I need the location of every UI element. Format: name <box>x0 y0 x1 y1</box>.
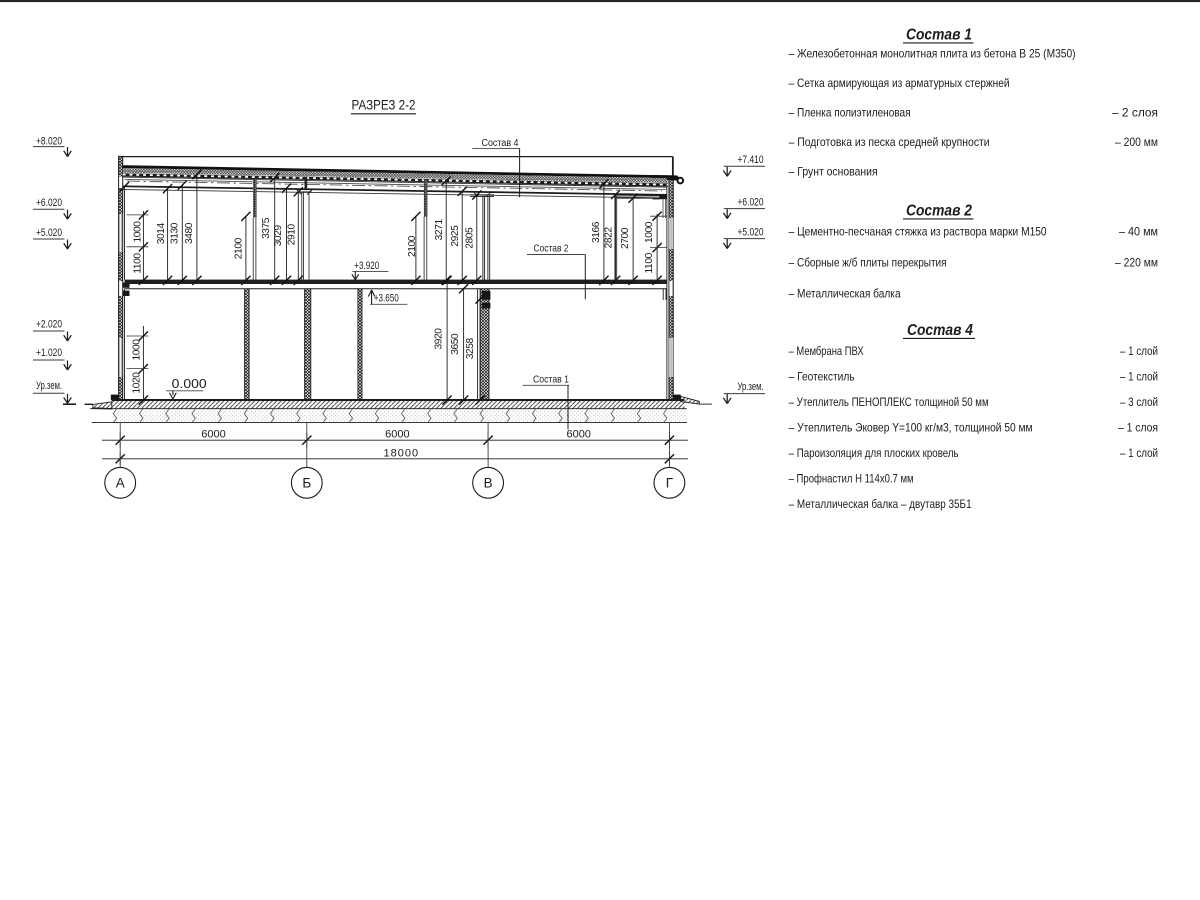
svg-text:0.000: 0.000 <box>172 377 207 391</box>
svg-text:+5.020: +5.020 <box>36 227 62 239</box>
svg-text:Б: Б <box>302 476 311 491</box>
svg-text:+8.020: +8.020 <box>36 136 62 148</box>
svg-text:3029: 3029 <box>273 225 284 247</box>
svg-text:+6.020: +6.020 <box>36 197 62 209</box>
svg-text:– Металлическая балка: – Металлическая балка <box>789 287 901 301</box>
svg-text:– Сетка армирующая из арматурн: – Сетка армирующая из арматурных стержне… <box>789 76 1010 90</box>
svg-text:– Геотекстиль: – Геотекстиль <box>789 370 855 384</box>
svg-text:– Профнастил Н 114х0.7 мм: – Профнастил Н 114х0.7 мм <box>789 472 914 486</box>
svg-text:– 2 слоя: – 2 слоя <box>1112 106 1158 120</box>
svg-text:6000: 6000 <box>201 429 225 441</box>
svg-text:Г: Г <box>666 476 674 491</box>
svg-text:– 220 мм: – 220 мм <box>1115 256 1158 270</box>
svg-text:2805: 2805 <box>464 227 475 249</box>
svg-text:2700: 2700 <box>620 227 631 249</box>
svg-text:+5.020: +5.020 <box>738 227 764 239</box>
svg-text:3130: 3130 <box>170 222 181 244</box>
svg-text:– 1 слой: – 1 слой <box>1120 446 1158 460</box>
svg-text:– Сборные ж/б плиты перекрытия: – Сборные ж/б плиты перекрытия <box>789 256 947 270</box>
svg-text:– Мембрана ПВХ: – Мембрана ПВХ <box>789 344 864 358</box>
svg-text:3650: 3650 <box>450 333 461 355</box>
svg-text:– Пленка полиэтиленовая: – Пленка полиэтиленовая <box>789 106 911 120</box>
svg-text:1000: 1000 <box>133 221 144 243</box>
svg-text:1100: 1100 <box>644 252 655 273</box>
svg-text:Ур.зем.: Ур.зем. <box>738 381 764 393</box>
svg-text:+3.650: +3.650 <box>374 293 399 305</box>
svg-text:2100: 2100 <box>234 237 245 259</box>
svg-text:2822: 2822 <box>604 227 615 249</box>
svg-text:1020: 1020 <box>131 372 142 394</box>
svg-text:3375: 3375 <box>261 217 272 239</box>
svg-text:– Металлическая балка – двутав: – Металлическая балка – двутавр 35Б1 <box>789 497 972 511</box>
svg-text:– 200 мм: – 200 мм <box>1115 135 1158 149</box>
svg-text:+1.020: +1.020 <box>36 347 62 359</box>
svg-text:Состав 2: Состав 2 <box>534 243 569 255</box>
svg-text:3271: 3271 <box>434 219 445 241</box>
svg-text:+3.920: +3.920 <box>354 260 379 272</box>
svg-text:– 3 слой: – 3 слой <box>1120 395 1158 409</box>
svg-text:– 1 слоя: – 1 слоя <box>1118 421 1158 435</box>
svg-text:Ур.зем.: Ур.зем. <box>36 380 62 392</box>
svg-text:3166: 3166 <box>591 221 602 243</box>
svg-text:1000: 1000 <box>131 339 142 361</box>
svg-text:2910: 2910 <box>286 223 297 245</box>
svg-text:– 40 мм: – 40 мм <box>1119 225 1158 239</box>
svg-text:+7.410: +7.410 <box>738 154 764 166</box>
svg-text:2925: 2925 <box>450 225 461 247</box>
svg-text:– Грунт основания: – Грунт основания <box>789 165 878 179</box>
svg-text:– Железобетонная монолитная п: – Железобетонная монолитная плита из бет… <box>789 47 1076 61</box>
svg-text:1100: 1100 <box>133 253 144 274</box>
svg-text:– Утеплитель Эковер Y=100 кг/м: – Утеплитель Эковер Y=100 кг/м3, толщино… <box>789 421 1033 435</box>
svg-text:– Утеплитель ПЕНОПЛЕКС толщино: – Утеплитель ПЕНОПЛЕКС толщиной 50 мм <box>789 395 989 409</box>
svg-text:– 1 слой: – 1 слой <box>1120 370 1158 384</box>
svg-text:6000: 6000 <box>566 429 590 441</box>
svg-text:2100: 2100 <box>407 235 418 257</box>
svg-text:– Подготовка из песка средней: – Подготовка из песка средней крупности <box>789 135 990 149</box>
svg-text:Состав 1: Состав 1 <box>906 27 972 44</box>
svg-text:В: В <box>484 476 493 491</box>
svg-text:– Цементно-песчаная стяжка из: – Цементно-песчаная стяжка из раствора м… <box>789 225 1047 239</box>
svg-text:Состав 4: Состав 4 <box>907 322 973 339</box>
svg-text:+2.020: +2.020 <box>36 319 62 331</box>
svg-text:1000: 1000 <box>644 221 655 243</box>
svg-text:– Пароизоляция для плоских кро: – Пароизоляция для плоских кровель <box>789 446 959 460</box>
svg-text:Состав 2: Состав 2 <box>906 203 972 220</box>
svg-text:3258: 3258 <box>465 337 476 359</box>
svg-text:18000: 18000 <box>384 447 420 459</box>
svg-text:3920: 3920 <box>433 328 444 350</box>
svg-text:Состав 1: Состав 1 <box>533 374 569 386</box>
svg-text:– 1 слой: – 1 слой <box>1120 344 1158 358</box>
svg-text:А: А <box>116 476 125 491</box>
svg-text:Состав 4: Состав 4 <box>482 137 519 149</box>
svg-text:6000: 6000 <box>385 429 409 441</box>
svg-text:3014: 3014 <box>156 222 167 244</box>
svg-text:3480: 3480 <box>184 222 195 244</box>
svg-text:+6.020: +6.020 <box>738 196 764 208</box>
svg-text:РАЗРЕЗ 2-2: РАЗРЕЗ 2-2 <box>352 97 416 113</box>
